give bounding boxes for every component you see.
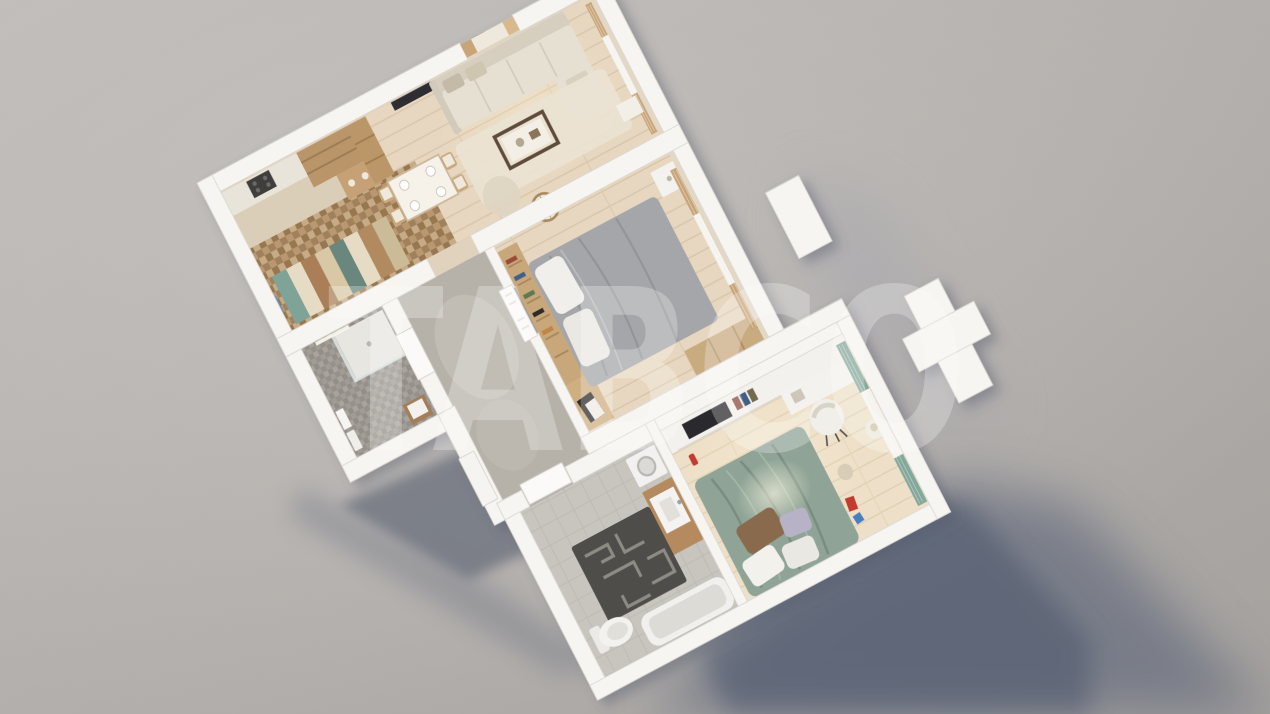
render-canvas: TABCO	[0, 0, 1270, 714]
watermark: TABCO	[328, 242, 968, 504]
floor-plan-render: TABCO	[0, 0, 1270, 714]
